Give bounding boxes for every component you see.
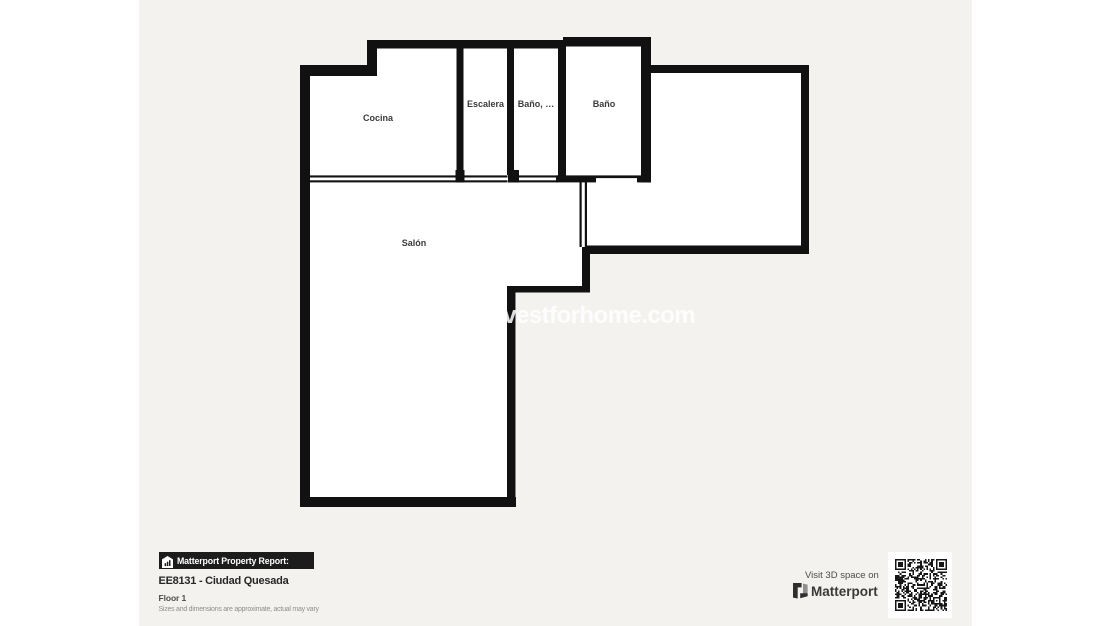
svg-text:Cocina: Cocina <box>363 113 394 123</box>
svg-text:Baño, …: Baño, … <box>518 99 555 109</box>
svg-text:Salón: Salón <box>402 238 427 248</box>
svg-text:Escalera: Escalera <box>467 99 505 109</box>
svg-text:Baño: Baño <box>593 99 616 109</box>
